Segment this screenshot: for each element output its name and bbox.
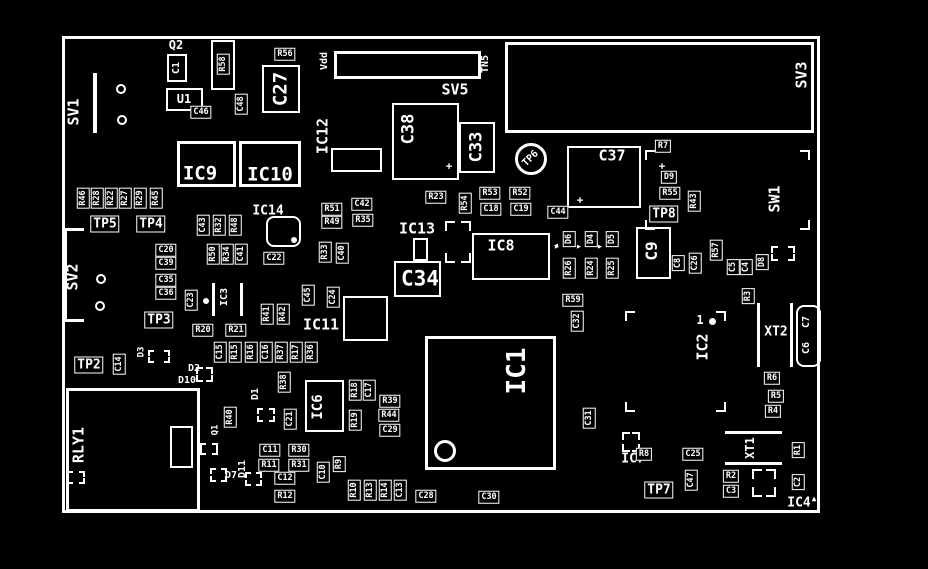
ref-IC11: IC11	[303, 318, 339, 333]
ref-D4: D4	[585, 231, 598, 247]
bracket-corner	[79, 478, 85, 484]
ref-R10: R10	[348, 479, 361, 500]
line-SV1-bar	[93, 73, 97, 133]
C38-polarity-mark: +	[446, 161, 453, 172]
ref-R42: R42	[277, 303, 290, 324]
ref-R1: R1	[792, 442, 805, 458]
ref-R39: R39	[379, 395, 400, 408]
bracket-corner	[766, 487, 776, 497]
ref-C5: C5	[727, 259, 740, 275]
ref-R53: R53	[479, 187, 500, 200]
ref-C44: C44	[547, 206, 568, 219]
ref-R38: R38	[278, 371, 291, 392]
pcb-layout-screenshot: SV1SV2SV3SV5SW1VddTN5Q2C1U1IC9IC10IC12IC…	[0, 0, 928, 569]
ref-TP5: TP5	[90, 216, 119, 233]
line-IC3-line-2	[240, 283, 243, 316]
ref-C23: C23	[185, 289, 198, 310]
ref-TP2: TP2	[74, 357, 103, 374]
ref-C17: C17	[363, 379, 376, 400]
ref-R13: R13	[364, 479, 377, 500]
ref-R7: R7	[655, 140, 671, 153]
ref-C26: C26	[689, 252, 702, 273]
ref-R54: R54	[459, 192, 472, 213]
ref-R31: R31	[288, 459, 309, 472]
ref-R8: R8	[636, 448, 652, 461]
ref-C29: C29	[379, 424, 400, 437]
ref-C15: C15	[214, 341, 227, 362]
bracket-corner	[771, 254, 778, 261]
ref-R4: R4	[765, 405, 781, 418]
ref-C40: C40	[336, 242, 349, 263]
ref-Q2: Q2	[169, 39, 183, 51]
ref-C16: C16	[260, 341, 273, 362]
ref-C18: C18	[480, 203, 501, 216]
ref-R5: R5	[768, 390, 784, 403]
ref-R58: R58	[217, 53, 230, 74]
ref-C25: C25	[682, 448, 703, 461]
bracket-corner	[716, 402, 726, 412]
bracket-corner	[148, 350, 154, 356]
ref-C32: C32	[571, 310, 584, 331]
ref-C14: C14	[113, 353, 126, 374]
ref-TN5: TN5	[481, 55, 491, 73]
ref-R3: R3	[742, 288, 755, 304]
ref-C4: C4	[740, 259, 753, 275]
bracket-corner	[164, 357, 170, 363]
bracket-corner	[716, 311, 726, 321]
ref-IC2: IC2	[696, 333, 711, 360]
outline-C6-C7-body	[796, 305, 821, 367]
ref-R14: R14	[379, 479, 392, 500]
line-XT1-line-t	[725, 431, 782, 434]
ref-R15: R15	[229, 341, 242, 362]
ref-R18: R18	[349, 379, 362, 400]
ref-C46: C46	[190, 106, 211, 119]
dot-IC14-pin1	[291, 237, 297, 243]
ref-D9: D9	[661, 171, 677, 184]
bracket-corner	[788, 246, 795, 253]
ref-IC6: IC6	[311, 394, 325, 419]
ref-C38: C38	[401, 114, 418, 145]
outline-RLY1-inner	[170, 426, 193, 468]
ref-R22: R22	[105, 187, 118, 208]
ref-C36: C36	[155, 287, 176, 300]
ref-R45: R45	[150, 187, 163, 208]
ref-C21: C21	[284, 408, 297, 429]
ref-C33: C33	[469, 132, 486, 163]
bracket-TP1-outline	[445, 221, 471, 263]
ref-TP3: TP3	[144, 312, 173, 329]
ref-C3: C3	[723, 485, 739, 498]
bracket-corner	[788, 254, 795, 261]
ref-R30: R30	[288, 444, 309, 457]
ref-D3: D3	[138, 347, 147, 358]
ref-C12: C12	[274, 472, 295, 485]
ref-R23: R23	[425, 191, 446, 204]
line-SV2-bracket-t	[64, 228, 84, 231]
bracket-corner	[625, 402, 635, 412]
bracket-corner	[67, 471, 73, 477]
ref-R49: R49	[321, 216, 342, 229]
outline-SV5-body	[334, 51, 481, 79]
ref-D8: D8	[756, 254, 769, 270]
ref-D2: D2	[188, 364, 200, 374]
ref-C6: C6	[802, 342, 812, 354]
bracket-corner	[164, 350, 170, 356]
ref-R51: R51	[321, 203, 342, 216]
ref-C7: C7	[802, 316, 812, 328]
ref-R48: R48	[229, 214, 242, 235]
ref-R57: R57	[710, 239, 723, 260]
bracket-pad-outline-8	[200, 443, 218, 455]
ref-R26: R26	[563, 257, 576, 278]
ref-TP4: TP4	[136, 216, 165, 233]
bracket-corner	[752, 469, 762, 479]
ref-RLY1: RLY1	[72, 427, 87, 463]
line-SV2-bracket-b	[64, 319, 84, 322]
ref-D1: D1	[251, 388, 261, 400]
ref-R56: R56	[274, 48, 295, 61]
ref-C27: C27	[272, 72, 291, 106]
outline-IC12-body	[331, 148, 382, 172]
ref-Q1: Q1	[212, 425, 221, 436]
dot-IC2-pin1-dot	[709, 318, 716, 325]
ref-R44: R44	[378, 409, 399, 422]
ref-C8: C8	[672, 255, 685, 271]
ref-R29: R29	[134, 187, 147, 208]
ref-IC14: IC14	[252, 205, 283, 218]
ref-U1: U1	[177, 93, 191, 105]
ref-IC9: IC9	[183, 165, 217, 184]
dot-IC3-dot	[203, 298, 209, 304]
ref-C47: C47	[685, 469, 698, 490]
ref-R27: R27	[119, 187, 132, 208]
ref-R9: R9	[333, 456, 346, 472]
bracket-corner	[445, 253, 455, 263]
ref-SV1: SV1	[67, 98, 82, 125]
ref-D10: D10	[178, 376, 196, 386]
ref-C9: C9	[644, 241, 660, 260]
bracket-corner	[206, 375, 213, 382]
bracket-corner	[256, 472, 262, 478]
ref-XT1: XT1	[744, 437, 756, 459]
IC8-arrow: ◀	[554, 243, 558, 250]
bracket-IC2-outline	[625, 311, 726, 412]
ref-C1: C1	[172, 62, 182, 74]
ref-Vdd: Vdd	[320, 52, 330, 70]
ring-SV1-hole-2	[117, 115, 127, 125]
ref-C43: C43	[197, 214, 210, 235]
ring-SV1-hole-1	[116, 84, 126, 94]
bracket-corner	[245, 480, 251, 486]
bracket-corner	[800, 220, 810, 230]
ref-C11: C11	[259, 444, 280, 457]
bracket-corner	[461, 253, 471, 263]
D9-polarity-mark: +	[659, 161, 666, 172]
ref-R24: R24	[585, 257, 598, 278]
ref-R36: R36	[305, 341, 318, 362]
bracket-corner	[800, 150, 810, 160]
bracket-pad-outline-6	[148, 350, 170, 363]
ring-SV2-hole-2	[95, 301, 105, 311]
ref-R59: R59	[562, 294, 583, 307]
bracket-corner	[79, 471, 85, 477]
ref-C28: C28	[415, 490, 436, 503]
bracket-corner	[67, 478, 73, 484]
ref-IC3: IC3	[220, 288, 230, 306]
ref-C20: C20	[155, 244, 176, 257]
ref-R34: R34	[221, 243, 234, 264]
outline-IC11-body	[343, 296, 388, 341]
D5-arrow: ▶	[598, 244, 602, 251]
ref-R41: R41	[261, 303, 274, 324]
line-XT1-line-b	[725, 462, 782, 465]
bracket-corner	[206, 367, 213, 374]
ref-R55: R55	[659, 187, 680, 200]
ref-R20: R20	[192, 324, 213, 337]
bracket-corner	[461, 221, 471, 231]
bracket-corner	[771, 246, 778, 253]
IC4-arrow: ▲	[812, 495, 817, 503]
ref-C35: C35	[155, 274, 176, 287]
ref-C2: C2	[792, 474, 805, 490]
ref-R35: R35	[352, 214, 373, 227]
ref-C41: C41	[235, 243, 248, 264]
outline-IC13-body	[413, 238, 428, 261]
ref-IC1: IC1	[504, 348, 530, 395]
bracket-corner	[212, 449, 218, 455]
ref-C22: C22	[263, 252, 284, 265]
ref-IC13: IC13	[399, 222, 435, 237]
ref-C39: C39	[155, 257, 176, 270]
bracket-corner	[752, 487, 762, 497]
ref-C24: C24	[327, 286, 340, 307]
ref-R52: R52	[509, 187, 530, 200]
ref-C34: C34	[401, 269, 439, 290]
ref-R2: R2	[723, 470, 739, 483]
ref-SW1: SW1	[768, 185, 783, 212]
ref-D7: D7	[225, 471, 237, 481]
ref-R37: R37	[275, 341, 288, 362]
bracket-corner	[210, 476, 216, 482]
bracket-corner	[622, 432, 630, 440]
bracket-corner	[632, 432, 640, 440]
ref-IC12: IC12	[316, 118, 331, 154]
bracket-corner	[200, 449, 206, 455]
ring-SV2-hole-1	[96, 274, 106, 284]
bracket-corner	[269, 408, 275, 414]
ref-R32: R32	[213, 214, 226, 235]
ref-TP7: TP7	[644, 482, 673, 499]
bracket-pad-outline-7	[771, 246, 795, 261]
ref-C13: C13	[394, 479, 407, 500]
ref-D6: D6	[563, 231, 576, 247]
bracket-corner	[257, 408, 263, 414]
ref-D5: D5	[606, 231, 619, 247]
ref-R11: R11	[258, 459, 279, 472]
ref-R16: R16	[245, 341, 258, 362]
ref-SV2: SV2	[66, 263, 81, 290]
bracket-corner	[269, 416, 275, 422]
bracket-corner	[257, 416, 263, 422]
line-XT2-line-r	[790, 303, 793, 367]
line-XT2-line-l	[757, 303, 760, 367]
ref-C37: C37	[598, 149, 625, 164]
bracket-corner	[256, 480, 262, 486]
ref-D11: D11	[238, 460, 248, 478]
ref-R46: R46	[77, 187, 90, 208]
ring-IC1-pin1	[434, 440, 456, 462]
bracket-corner	[645, 150, 655, 160]
ref-IC8: IC8	[487, 239, 514, 254]
bracket-IC4-outline	[752, 469, 776, 497]
bracket-corner	[445, 221, 455, 231]
ref-XT2: XT2	[764, 326, 787, 339]
bracket-corner	[196, 375, 203, 382]
ref-C42: C42	[351, 198, 372, 211]
ref-C30: C30	[478, 491, 499, 504]
ref-R50: R50	[207, 243, 220, 264]
ref-R25: R25	[606, 257, 619, 278]
ref-R17: R17	[290, 341, 303, 362]
ref-R12: R12	[274, 490, 295, 503]
ref-IC10: IC10	[247, 166, 293, 185]
ref-R21: R21	[225, 324, 246, 337]
ref-C10: C10	[317, 461, 330, 482]
D4-arrow: ▶	[577, 244, 581, 251]
ref-SV5: SV5	[441, 83, 468, 98]
ref-TP8: TP8	[649, 206, 678, 223]
outline-SV3-body	[505, 42, 814, 133]
ref-R28: R28	[91, 187, 104, 208]
ref-R6: R6	[764, 372, 780, 385]
line-IC3-line-1	[212, 283, 215, 316]
ref-SV3: SV3	[795, 61, 810, 88]
ref-R19: R19	[349, 409, 362, 430]
ref-C45: C45	[302, 284, 315, 305]
ref-R43: R43	[688, 190, 701, 211]
ref-C19: C19	[510, 203, 531, 216]
ref-C31: C31	[583, 407, 596, 428]
bracket-corner	[625, 311, 635, 321]
bracket-pad-outline-5	[67, 471, 85, 484]
ref-R33: R33	[319, 241, 332, 262]
bracket-corner	[766, 469, 776, 479]
bracket-pad-outline-2	[257, 408, 275, 422]
ref-R40: R40	[224, 406, 237, 427]
ref-1: 1	[696, 314, 703, 326]
bracket-corner	[148, 357, 154, 363]
bracket-corner	[210, 468, 216, 474]
ref-IC4: IC4	[787, 497, 810, 510]
C37-polarity-mark: +	[577, 195, 584, 206]
ref-C48: C48	[235, 93, 248, 114]
